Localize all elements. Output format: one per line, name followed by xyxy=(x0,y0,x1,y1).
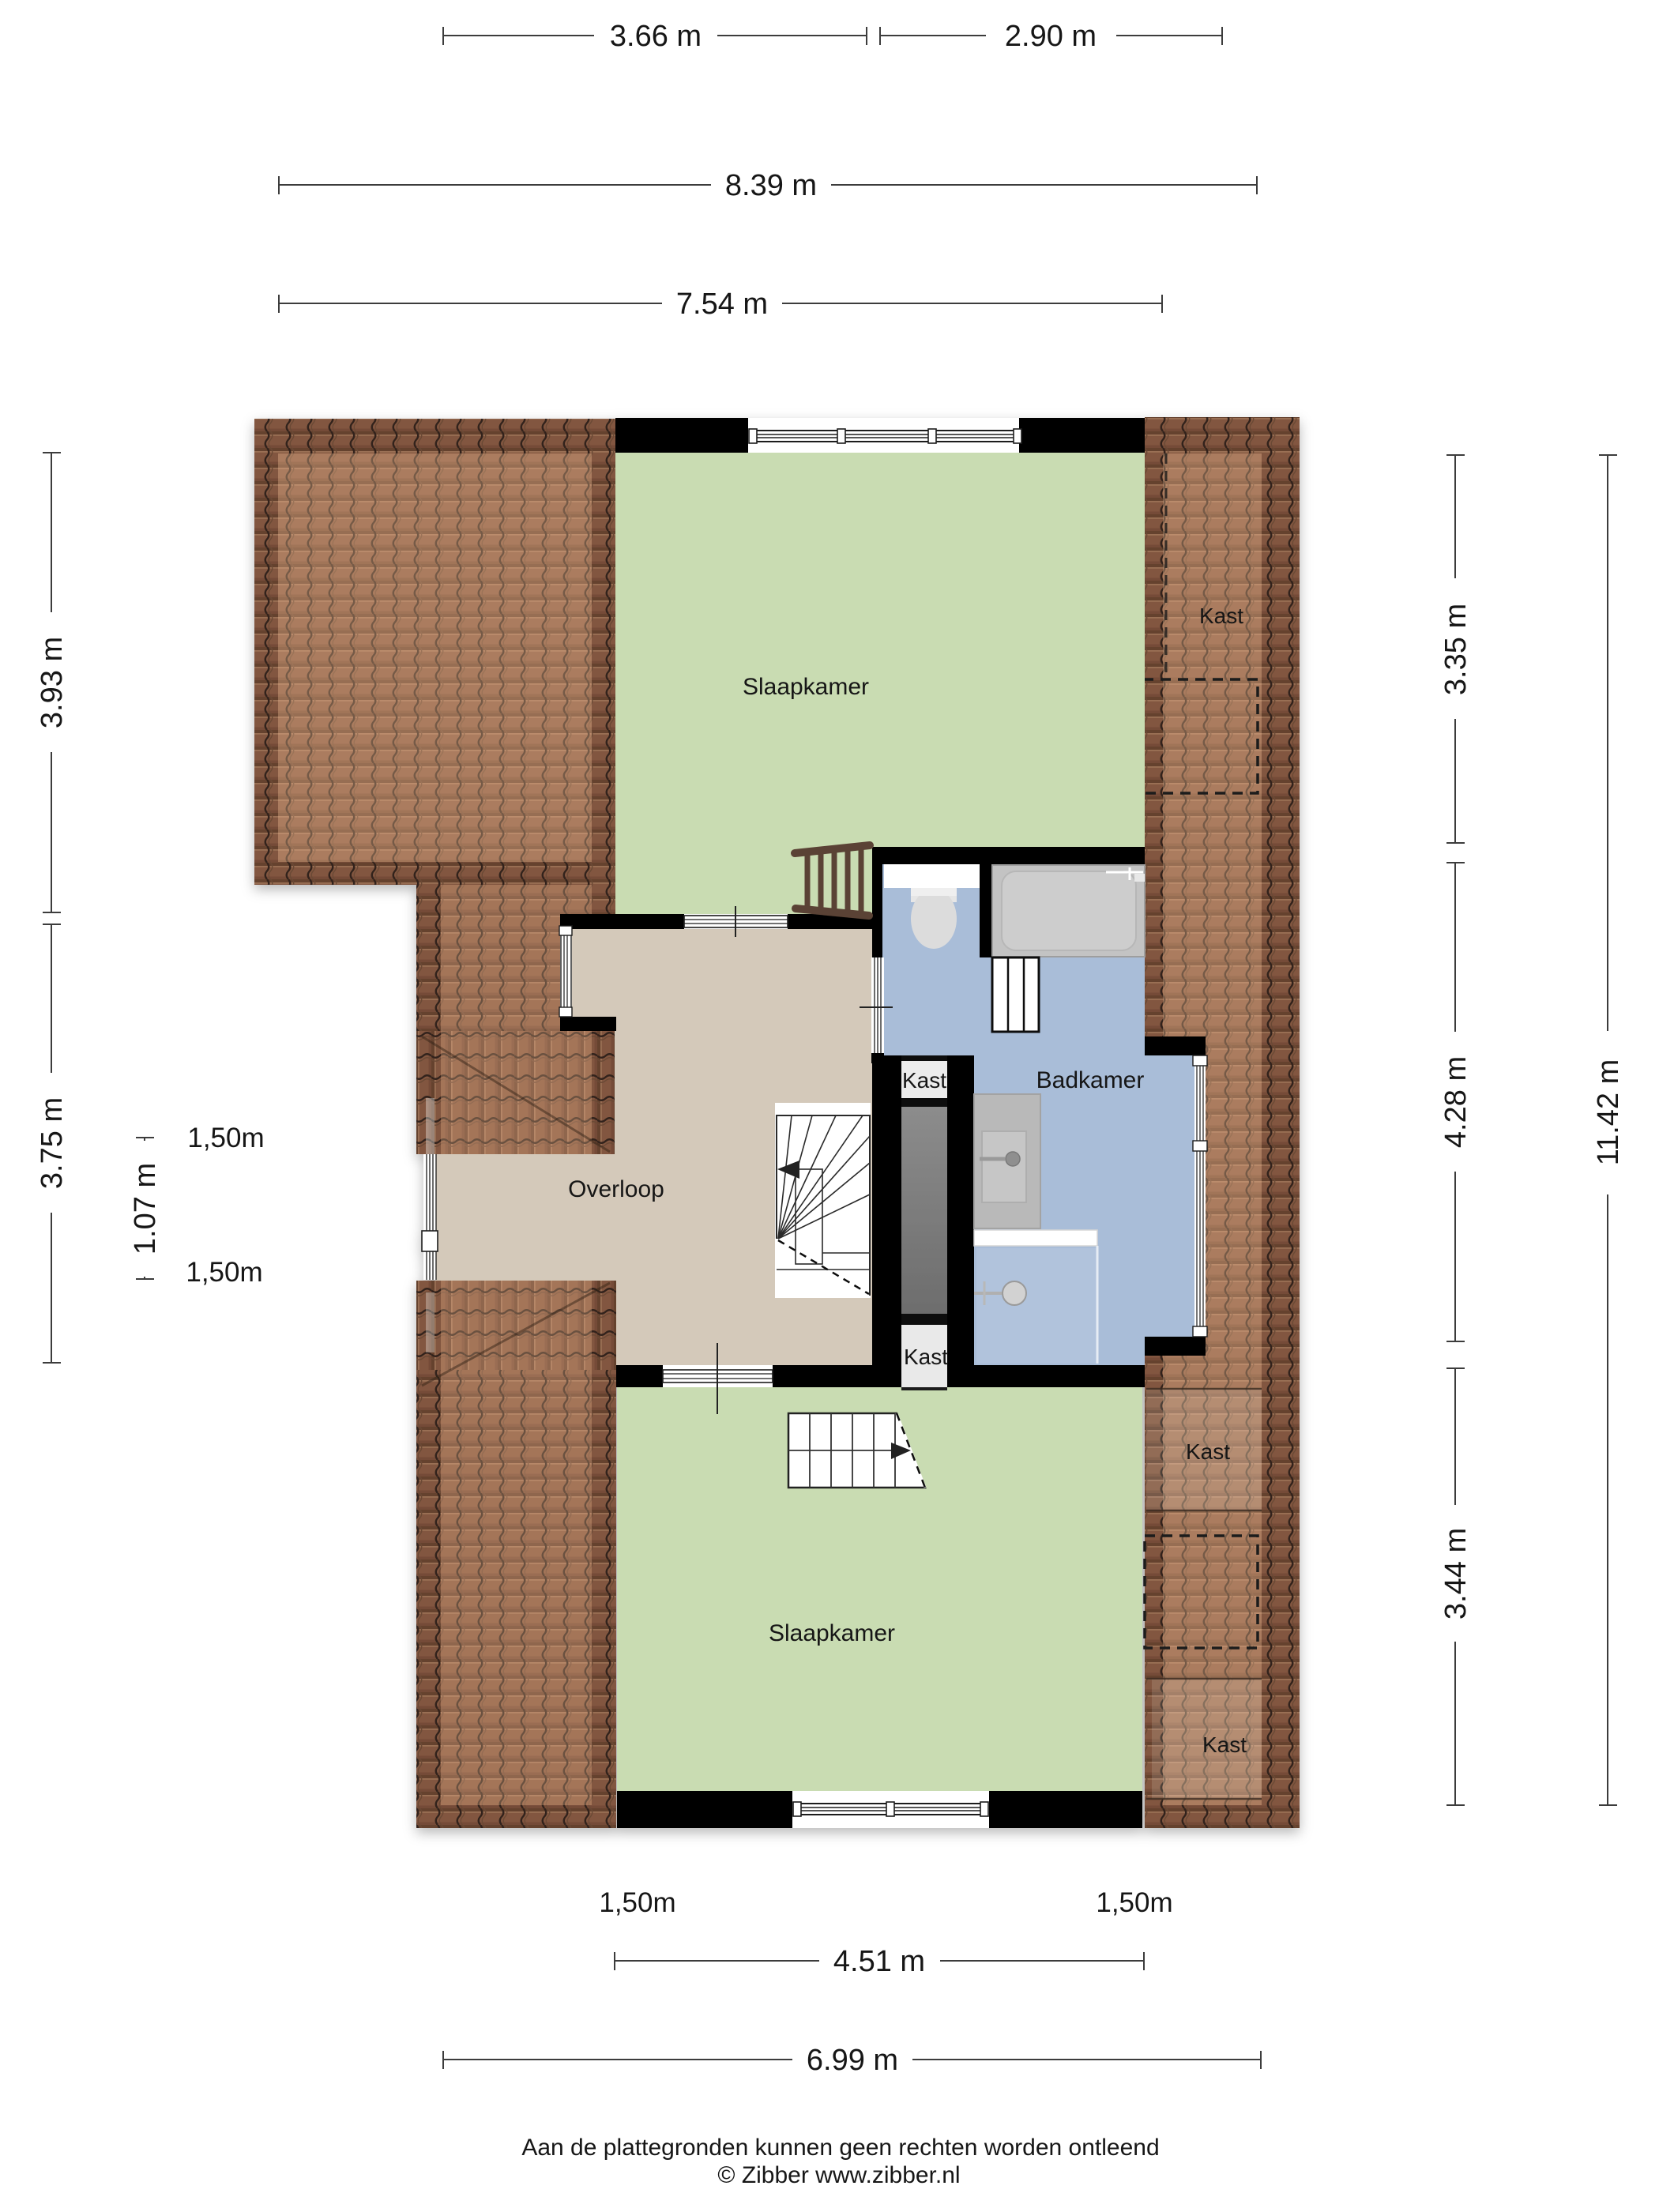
svg-text:2.90 m: 2.90 m xyxy=(1005,20,1097,53)
svg-text:Kast: Kast xyxy=(904,1345,948,1369)
svg-text:3.66 m: 3.66 m xyxy=(610,20,702,53)
svg-text:3.44 m: 3.44 m xyxy=(1439,1528,1473,1619)
svg-text:4.28 m: 4.28 m xyxy=(1439,1056,1473,1148)
svg-text:6.99 m: 6.99 m xyxy=(807,2044,898,2077)
svg-text:Slaapkamer: Slaapkamer xyxy=(769,1620,895,1646)
svg-text:© Zibber www.zibber.nl: © Zibber www.zibber.nl xyxy=(717,2162,960,2188)
svg-text:1.07 m: 1.07 m xyxy=(129,1163,162,1255)
svg-text:11.42 m: 11.42 m xyxy=(1592,1059,1625,1165)
svg-text:7.54 m: 7.54 m xyxy=(676,288,768,321)
svg-text:3.75 m: 3.75 m xyxy=(36,1097,69,1189)
svg-text:Kast: Kast xyxy=(902,1068,946,1093)
svg-text:Badkamer: Badkamer xyxy=(1036,1067,1145,1093)
svg-text:1,50m: 1,50m xyxy=(187,1123,264,1153)
svg-text:1,50m: 1,50m xyxy=(186,1257,262,1288)
svg-text:Kast: Kast xyxy=(1199,604,1243,628)
svg-text:Aan de plattegronden kunnen ge: Aan de plattegronden kunnen geen rechten… xyxy=(521,2135,1159,2161)
svg-text:1,50m: 1,50m xyxy=(1096,1887,1172,1918)
svg-text:8.39 m: 8.39 m xyxy=(725,169,817,202)
svg-text:Slaapkamer: Slaapkamer xyxy=(743,674,869,700)
svg-text:3.35 m: 3.35 m xyxy=(1439,604,1473,695)
svg-text:3.93 m: 3.93 m xyxy=(36,637,69,728)
svg-text:Kast: Kast xyxy=(1186,1439,1230,1464)
svg-text:1,50m: 1,50m xyxy=(599,1887,675,1918)
svg-text:4.51 m: 4.51 m xyxy=(833,1945,925,1978)
svg-text:Kast: Kast xyxy=(1202,1732,1247,1757)
svg-text:Overloop: Overloop xyxy=(568,1176,664,1202)
